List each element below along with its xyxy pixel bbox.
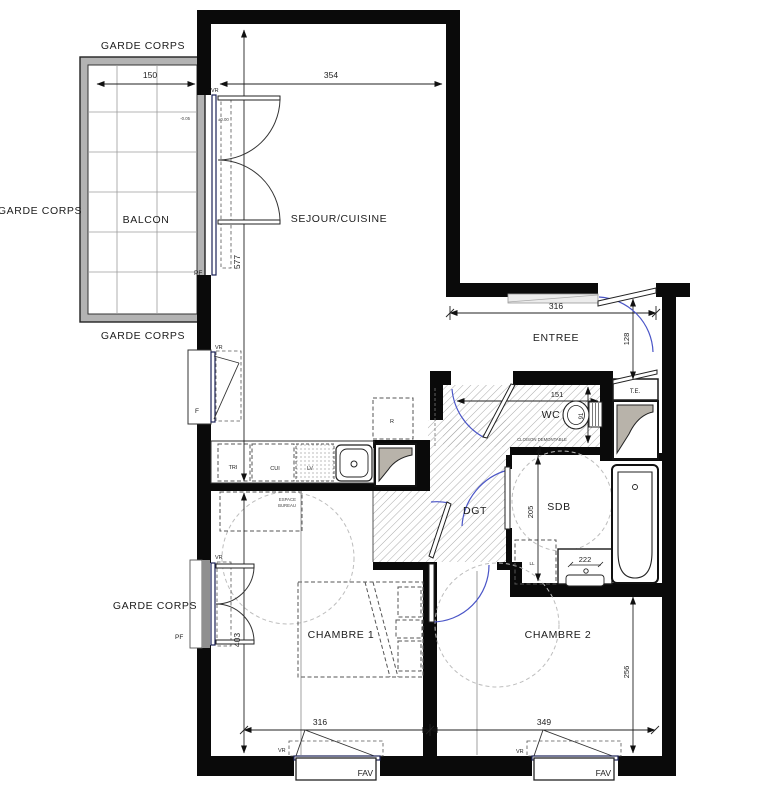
turning-circle-ch2 (435, 563, 559, 687)
fav1-tilt (296, 730, 377, 757)
tri-box (218, 444, 250, 481)
floor-plan-drawing: GARDE CORPS GARDE CORPS GARDE CORPS GARD… (0, 0, 774, 800)
dim-wc-width: 151 (551, 390, 564, 399)
cui-label: CUI (270, 466, 280, 472)
vr-label-pf1: VR (211, 88, 219, 94)
dim-bottom (240, 724, 659, 736)
technical-shaft-entree (613, 401, 658, 459)
room-label-chambre2: CHAMBRE 2 (525, 629, 592, 641)
vr-label-fav2: VR (516, 749, 524, 755)
dim-sejour-width: 354 (324, 70, 338, 80)
sdb-door-leaf (505, 467, 510, 529)
room-label-entree: ENTREE (533, 332, 579, 344)
lv-label: LV (307, 466, 313, 472)
dim-sejour-height: 577 (232, 255, 242, 269)
garde-corps-left-label: GARDE CORPS (0, 205, 82, 217)
balcony (80, 57, 205, 322)
te-label: T.E. (630, 389, 641, 395)
pf1-glazing (212, 95, 216, 275)
fav2-label: FAV (596, 768, 612, 778)
fav2-tilt (534, 730, 615, 757)
pf1-swing-b (218, 160, 280, 220)
dim-ch2-width: 349 (537, 717, 551, 727)
ll-label: LL (529, 561, 535, 566)
pf-label-bottom: PF (175, 634, 183, 641)
vr-label-f: VR (215, 345, 223, 351)
room-label-balcon: BALCON (123, 214, 170, 226)
dim-washbasin: 222 (579, 555, 592, 564)
dim-sdb-height: 205 (526, 506, 535, 519)
f-tilt-a (214, 356, 239, 363)
tri-label: TRI (229, 465, 238, 471)
entrance-door-leaf (598, 288, 656, 306)
f-label: F (195, 408, 199, 415)
pf1-leaf-a (218, 96, 280, 100)
pf1-leaf-b (218, 220, 280, 224)
vr-label-pf2: VR (215, 555, 223, 561)
dim-entree-door: 128 (622, 333, 631, 346)
electrical-panel (613, 370, 658, 400)
balcony-floor (88, 65, 197, 314)
ch2-door-leaf (429, 564, 434, 622)
f-glazing (211, 352, 215, 422)
pf1-vr (221, 97, 231, 268)
kitchen-sink (336, 445, 372, 481)
dgt-hatch-left (373, 491, 428, 562)
pf-label-top: PF (194, 270, 202, 277)
r-label: R (390, 419, 394, 425)
bathtub (612, 465, 658, 583)
room-label-sejour: SEJOUR/CUISINE (291, 213, 388, 225)
dim-entree-width: 316 (549, 301, 563, 311)
turning-circle-ch1 (222, 492, 354, 624)
f-window-recess (188, 350, 211, 424)
pf1-swing-a (218, 100, 280, 160)
level-balcony: -0.05 (180, 116, 190, 121)
cui-box (252, 444, 294, 481)
dim-ch2-height: 256 (622, 666, 631, 679)
garde-corps-ch1-label: GARDE CORPS (113, 600, 197, 612)
fav1-label: FAV (358, 768, 374, 778)
dim-balcon-width: 150 (143, 70, 157, 80)
garde-corps-bottom-label: GARDE CORPS (101, 330, 185, 342)
pf2-railing-in (202, 560, 210, 648)
f-tilt-b (214, 363, 239, 419)
dim-ch1-height: 403 (232, 633, 242, 647)
dgt-hatch (428, 420, 510, 562)
lv-box (296, 444, 334, 481)
technical-shaft-kitchen (375, 444, 416, 486)
pf2-swing-a (216, 568, 254, 604)
garde-corps-top-label: GARDE CORPS (101, 40, 185, 52)
pf2-leaf-a (216, 564, 254, 568)
room-label-wc: WC (542, 409, 561, 421)
espace-label-1: ESPACE (279, 497, 296, 502)
espace-label-2: BUREAU (278, 503, 296, 508)
level-interior: ±0.00 (218, 117, 229, 122)
dim-ch1-width: 316 (313, 717, 327, 727)
ch2-door-arc (432, 565, 489, 622)
room-label-dgt: DGT (463, 505, 487, 517)
floor-plan: GARDE CORPS GARDE CORPS GARDE CORPS GARD… (0, 0, 774, 800)
vr-label-fav1: VR (278, 748, 286, 754)
pf2-glazing (211, 563, 215, 645)
cloison-label: CLOISON DEMONTABLE (517, 437, 567, 442)
room-label-chambre1: CHAMBRE 1 (308, 629, 375, 641)
dim-wc-depth: 91 (579, 412, 585, 419)
room-label-sdb: SDB (547, 501, 570, 513)
